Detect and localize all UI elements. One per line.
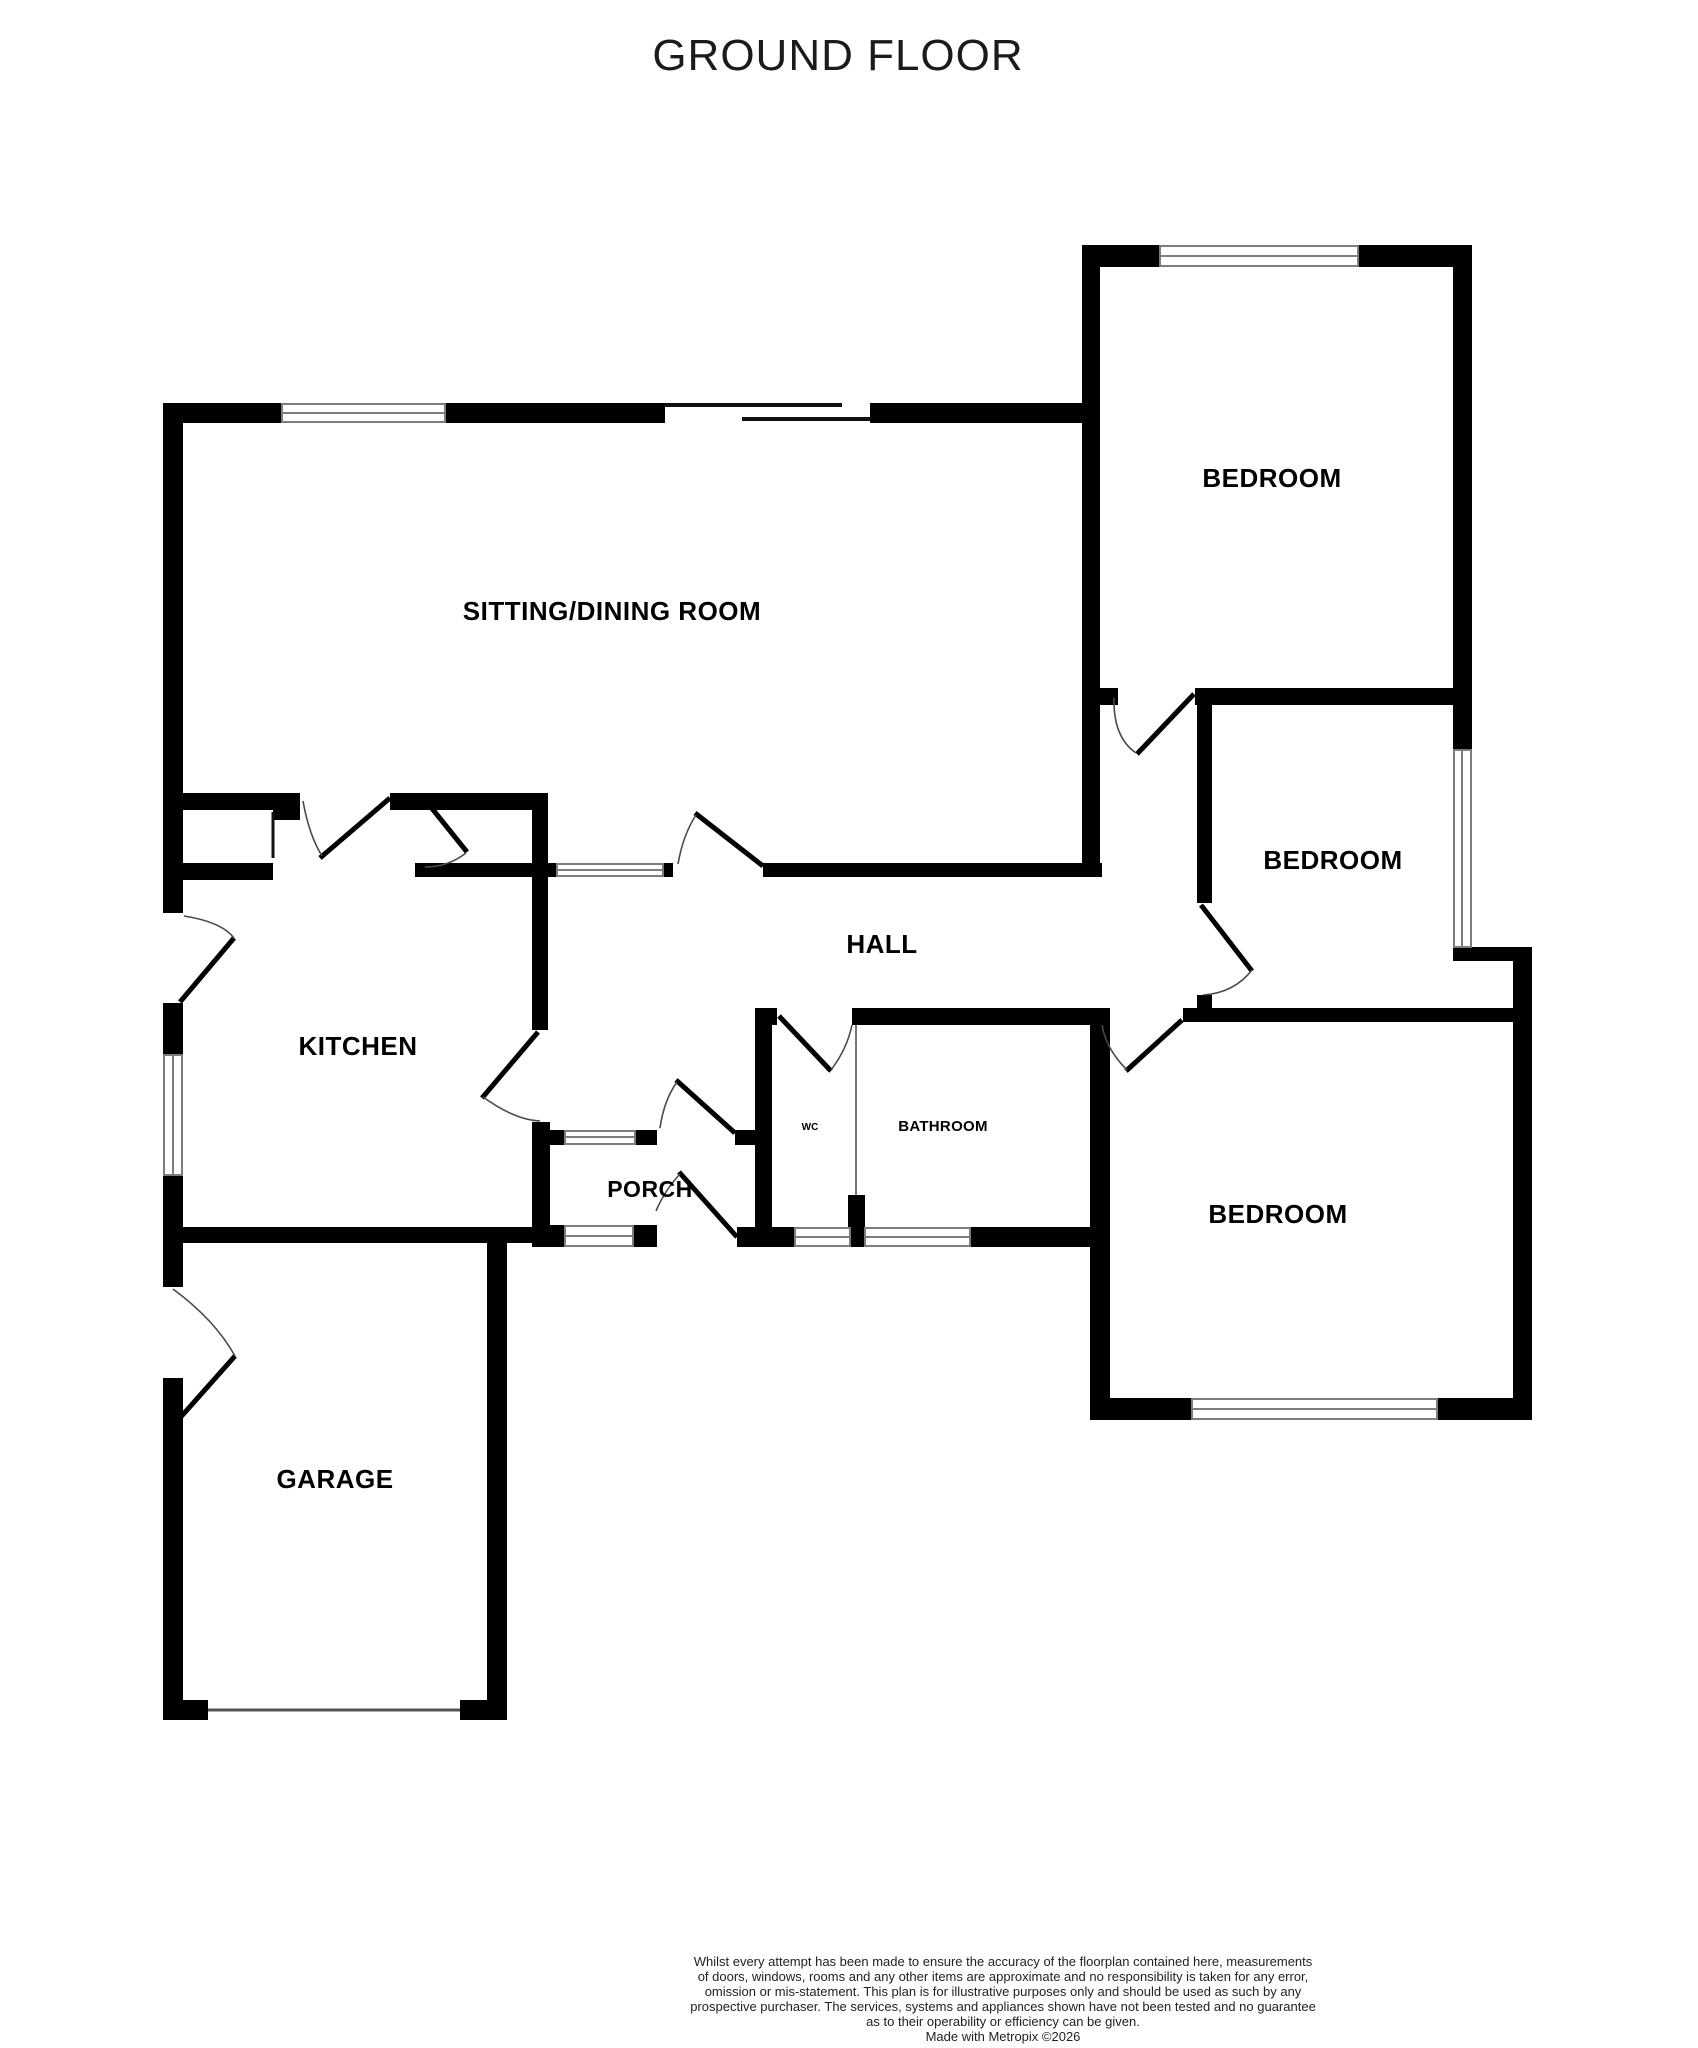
wall-segment [163,403,183,913]
window-porch-top [565,1131,635,1144]
wall-segment [163,403,282,423]
wall-segment [663,863,673,877]
wall-segment [970,1227,1095,1247]
wall-segment [635,1130,657,1145]
room-label-wc: WC [802,1122,819,1133]
wall-segment [1082,245,1160,267]
disclaimer-line: as to their operability or efficiency ca… [866,2014,1140,2029]
wall-segment [1090,1022,1110,1420]
wall-segment [1100,688,1118,705]
window-kitchen-side [164,1055,182,1175]
wall-segment [1437,1398,1532,1420]
door-porch-inner [660,1080,735,1133]
window-sitting-room [282,404,445,422]
wall-segment [548,1130,565,1145]
wall-segment [1197,690,1212,903]
wall-segment [532,1225,565,1247]
wall-segment [183,1227,568,1243]
window-bedroom-top [1160,246,1358,266]
wall-segment [850,1227,865,1247]
window-bedroom-middle-side [1454,750,1471,947]
door-kitchen-side [180,916,234,1002]
door-bedroom-top [1114,694,1194,754]
wall-segment [163,1378,183,1720]
door-hall-to-sitting [678,813,763,866]
window-hall-internal [557,864,663,876]
wall-segment [1090,1398,1192,1420]
window-bathroom [865,1228,970,1246]
wall-segment [183,863,273,880]
wall-segment [390,793,547,810]
disclaimer-line: of doors, windows, rooms and any other i… [698,1969,1309,1984]
wall-segment [1195,688,1453,705]
wall-segment [1082,245,1100,863]
credit-line: Made with Metropix ©2026 [926,2029,1081,2044]
wall-segment [1183,1008,1532,1022]
door-wc [779,1016,852,1071]
wall-segment [1453,245,1472,750]
wall-segment [163,1700,208,1720]
room-label-sitting-dining: SITTING/DINING ROOM [463,596,761,626]
wall-segment [870,403,1095,423]
wall-segment [163,1003,183,1055]
wall-segment [735,1130,757,1145]
wall-segment [763,863,1102,877]
disclaimer-line: prospective purchaser. The services, sys… [690,1999,1316,2014]
windows [164,246,1471,1419]
room-label-garage: GARAGE [276,1464,393,1494]
wall-segment [755,1008,772,1243]
wall-segment [487,1243,507,1720]
door-bedroom-bottom [1102,1020,1182,1071]
footer-disclaimer: Whilst every attempt has been made to en… [690,1954,1316,2044]
room-label-kitchen: KITCHEN [298,1031,417,1061]
wall-segment [737,1227,795,1247]
room-label-bedroom-middle: BEDROOM [1263,845,1402,875]
room-label-porch: PORCH [607,1176,693,1202]
wall-segment [532,793,548,1030]
floorplan-drawing: GROUND FLOOR SITTING/DINING ROOM BEDROOM… [0,0,1698,2048]
wall-segment [163,1175,183,1287]
room-label-hall: HALL [846,929,917,959]
room-label-bedroom-bottom: BEDROOM [1208,1199,1347,1229]
floorplan-page: GROUND FLOOR SITTING/DINING ROOM BEDROOM… [0,0,1698,2048]
door-kitchen-to-porch-hall [482,1032,540,1121]
window-bedroom-bottom [1192,1399,1437,1419]
wall-segment [445,403,665,423]
room-label-bathroom: BATHROOM [898,1118,988,1135]
door-bedroom-middle [1201,905,1252,995]
window-porch-bottom [565,1226,633,1246]
wall-segment [633,1225,657,1247]
disclaimer-line: Whilst every attempt has been made to en… [694,1954,1313,1969]
wall-segment [273,793,300,820]
window-wc [795,1228,850,1246]
room-label-bedroom-top: BEDROOM [1202,463,1341,493]
page-title: GROUND FLOOR [652,31,1023,80]
wall-segment [852,1008,1110,1025]
disclaimer-line: omission or mis-statement. This plan is … [705,1984,1302,1999]
wall-segment [755,1008,777,1025]
